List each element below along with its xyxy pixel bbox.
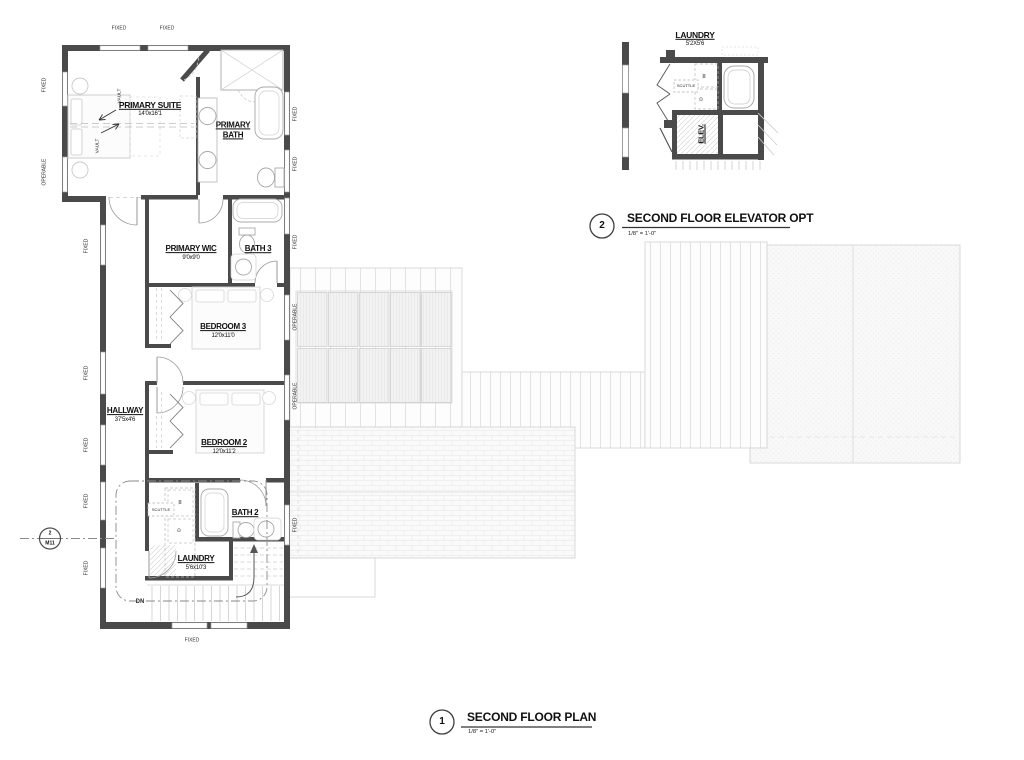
roof-plane-flat — [750, 245, 960, 463]
window-tag: FIXED — [43, 78, 48, 93]
window-tag: FIXED — [294, 518, 299, 533]
window-tag: FIXED — [294, 107, 299, 122]
callout-number-elevator: 2 — [599, 221, 605, 231]
room-label-bedroom2: BEDROOM 2 12'0x11'2 — [201, 438, 247, 456]
sink — [199, 152, 216, 169]
bifold-closet-doors — [657, 64, 670, 124]
section-marker-sheet: M11 — [45, 541, 54, 546]
callout-scale-elevator: 1/8" = 1'-0" — [628, 232, 656, 238]
scuttle-label: SCUTTLE — [677, 84, 695, 88]
toilet — [238, 523, 254, 538]
window-tag: OPERABLE — [43, 159, 48, 186]
bifold-closet-doors — [170, 394, 183, 448]
nightstand — [72, 162, 88, 178]
stair-tick-marks — [676, 161, 760, 170]
sink — [199, 108, 216, 125]
callout-title-elevator: SECOND FLOOR ELEVATOR OPT — [627, 212, 813, 224]
drawing-sheet: FIXED FIXED FIXED OPERABLE FIXED FIXED F… — [0, 0, 1024, 760]
elevator-option-plan — [622, 42, 778, 170]
window-tag: FIXED — [85, 438, 90, 453]
washer-label: W — [180, 500, 185, 505]
room-label-primary-wic: PRIMARY WIC 9'0x9'0 — [166, 244, 217, 262]
dryer-label: D — [179, 528, 184, 531]
callout-scale-main: 1/8" = 1'-0" — [468, 730, 496, 736]
stair-treads-down — [152, 586, 280, 621]
nightstand — [72, 78, 88, 94]
roof-plane-shingle — [287, 427, 575, 558]
room-label-laundry: LAUNDRY 5'6x10'3 — [178, 554, 215, 572]
roof-plane-tall — [645, 242, 767, 448]
section-marker-number: 2 — [49, 532, 52, 537]
window-tag: FIXED — [112, 27, 127, 32]
room-label-elevator: ELEV. — [697, 124, 706, 143]
roof-areas — [287, 242, 960, 597]
window-tag: FIXED — [85, 494, 90, 509]
washer-label: W — [704, 74, 709, 79]
room-label-hallway: HALLWAY 37'5x4'6 — [107, 406, 143, 424]
window-tag: FIXED — [185, 639, 200, 644]
window-tag: FIXED — [294, 157, 299, 172]
stair-down-label: DN — [136, 599, 145, 605]
window-tag: FIXED — [85, 366, 90, 381]
dresser-dashed — [180, 96, 196, 138]
sink — [236, 259, 252, 275]
elevator-door-leaf — [660, 128, 672, 152]
angled-wall — [182, 50, 208, 80]
window-tag: FIXED — [85, 561, 90, 576]
sink — [258, 521, 274, 537]
roof-step-outline — [287, 558, 375, 597]
callout-title-main: SECOND FLOOR PLAN — [467, 711, 596, 723]
room-label-primary-suite: PRIMARY SUITE 14'0x16'1 — [119, 100, 181, 118]
callout-number-main: 1 — [439, 717, 445, 727]
dryer-label: D — [701, 97, 706, 100]
room-label-bath2: BATH 2 — [232, 508, 259, 518]
stair-treads-up — [234, 548, 283, 576]
room-label-bedroom3: BEDROOM 3 12'0x11'0 — [200, 322, 246, 340]
window-tag: FIXED — [160, 27, 175, 32]
window-tag: OPERABLE — [294, 304, 299, 331]
scuttle-label: SCUTTLE — [152, 508, 170, 512]
stair-direction-arrow — [250, 544, 258, 553]
toilet — [258, 168, 275, 187]
stair-direction-line — [236, 549, 254, 597]
room-label-primary-bath: PRIMARY BATH — [216, 120, 251, 139]
window-tag: FIXED — [294, 235, 299, 250]
vault-label: VAULT — [97, 139, 102, 154]
room-label-bath3: BATH 3 — [245, 244, 272, 254]
laundry-hatch — [150, 545, 176, 576]
room-label-elev-laundry: LAUNDRY 5'2X5'6 — [675, 30, 714, 48]
window-tag: FIXED — [85, 239, 90, 254]
elevator-plan-fixtures — [674, 47, 758, 109]
vault-label: VAULT — [119, 89, 124, 104]
window-tag: OPERABLE — [294, 383, 299, 410]
